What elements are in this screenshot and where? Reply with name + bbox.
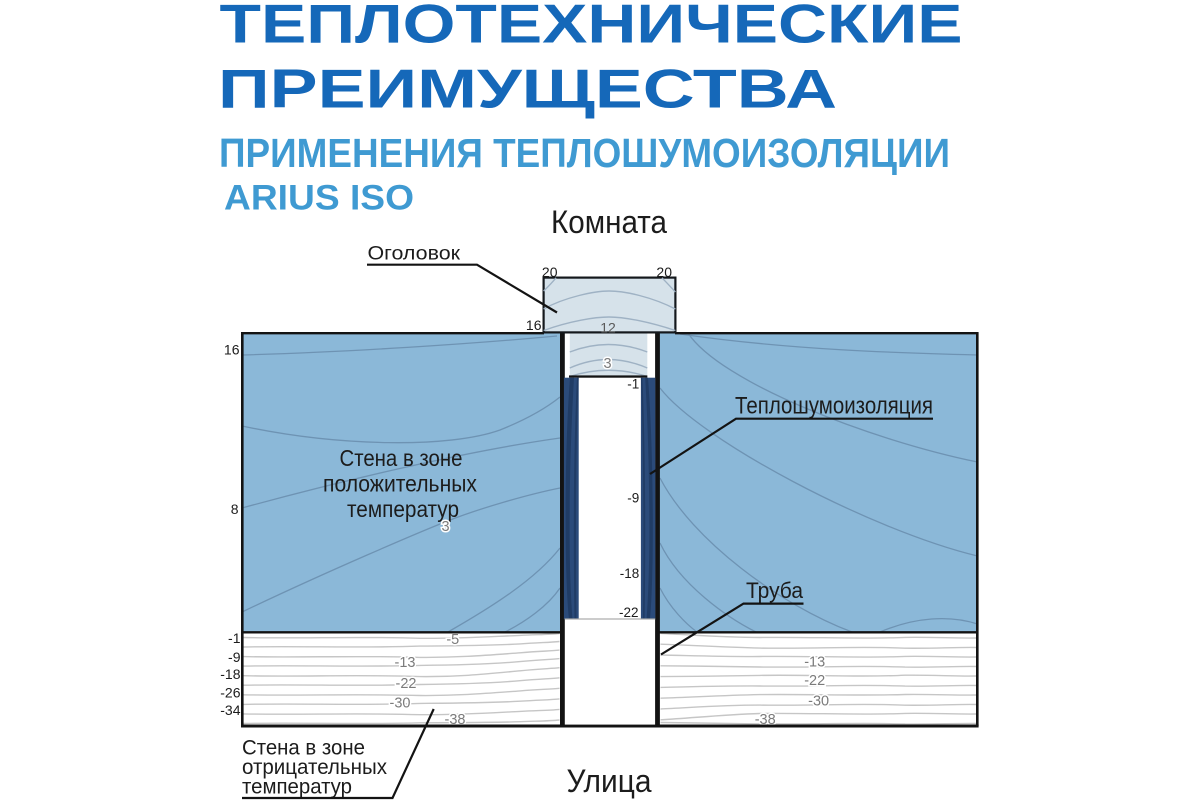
svg-text:-9: -9 (627, 491, 639, 506)
svg-text:Теплошумоизоляция: Теплошумоизоляция (735, 393, 933, 420)
svg-text:-22: -22 (804, 673, 825, 689)
svg-text:ТЕПЛОТЕХНИЧЕСКИЕ: ТЕПЛОТЕХНИЧЕСКИЕ (220, 0, 963, 55)
svg-text:Улица: Улица (567, 763, 652, 799)
svg-text:20: 20 (542, 264, 558, 280)
svg-text:Комната: Комната (551, 204, 667, 240)
svg-text:3: 3 (441, 519, 449, 535)
svg-text:-22: -22 (396, 676, 417, 692)
svg-text:-13: -13 (395, 655, 416, 671)
svg-text:-9: -9 (228, 649, 241, 665)
svg-text:3: 3 (603, 356, 611, 372)
svg-text:ПРИМЕНЕНИЯ ТЕПЛОШУМОИЗОЛЯЦИИ: ПРИМЕНЕНИЯ ТЕПЛОШУМОИЗОЛЯЦИИ (219, 130, 950, 176)
svg-text:-30: -30 (808, 694, 829, 710)
svg-text:12: 12 (600, 320, 616, 336)
svg-text:-22: -22 (619, 605, 639, 620)
svg-text:Оголовок: Оголовок (368, 243, 461, 265)
svg-text:8: 8 (231, 501, 239, 517)
svg-text:-1: -1 (228, 630, 241, 646)
svg-text:положительных: положительных (323, 471, 477, 497)
svg-text:16: 16 (224, 341, 240, 357)
svg-text:ARIUS ISO: ARIUS ISO (224, 179, 414, 218)
svg-text:-18: -18 (620, 566, 640, 581)
svg-text:температур: температур (242, 776, 352, 799)
svg-text:ПРЕИМУЩЕСТВА: ПРЕИМУЩЕСТВА (218, 58, 837, 120)
svg-text:-26: -26 (220, 685, 240, 701)
svg-text:Труба: Труба (746, 578, 804, 603)
svg-text:-5: -5 (446, 632, 459, 648)
svg-text:20: 20 (656, 264, 672, 280)
svg-text:-30: -30 (390, 696, 411, 712)
svg-text:-34: -34 (220, 702, 240, 718)
svg-text:-13: -13 (804, 655, 825, 671)
svg-text:-18: -18 (220, 666, 240, 682)
svg-text:Стена в зоне: Стена в зоне (340, 445, 463, 471)
svg-text:-1: -1 (627, 376, 639, 391)
svg-text:16: 16 (526, 317, 542, 333)
